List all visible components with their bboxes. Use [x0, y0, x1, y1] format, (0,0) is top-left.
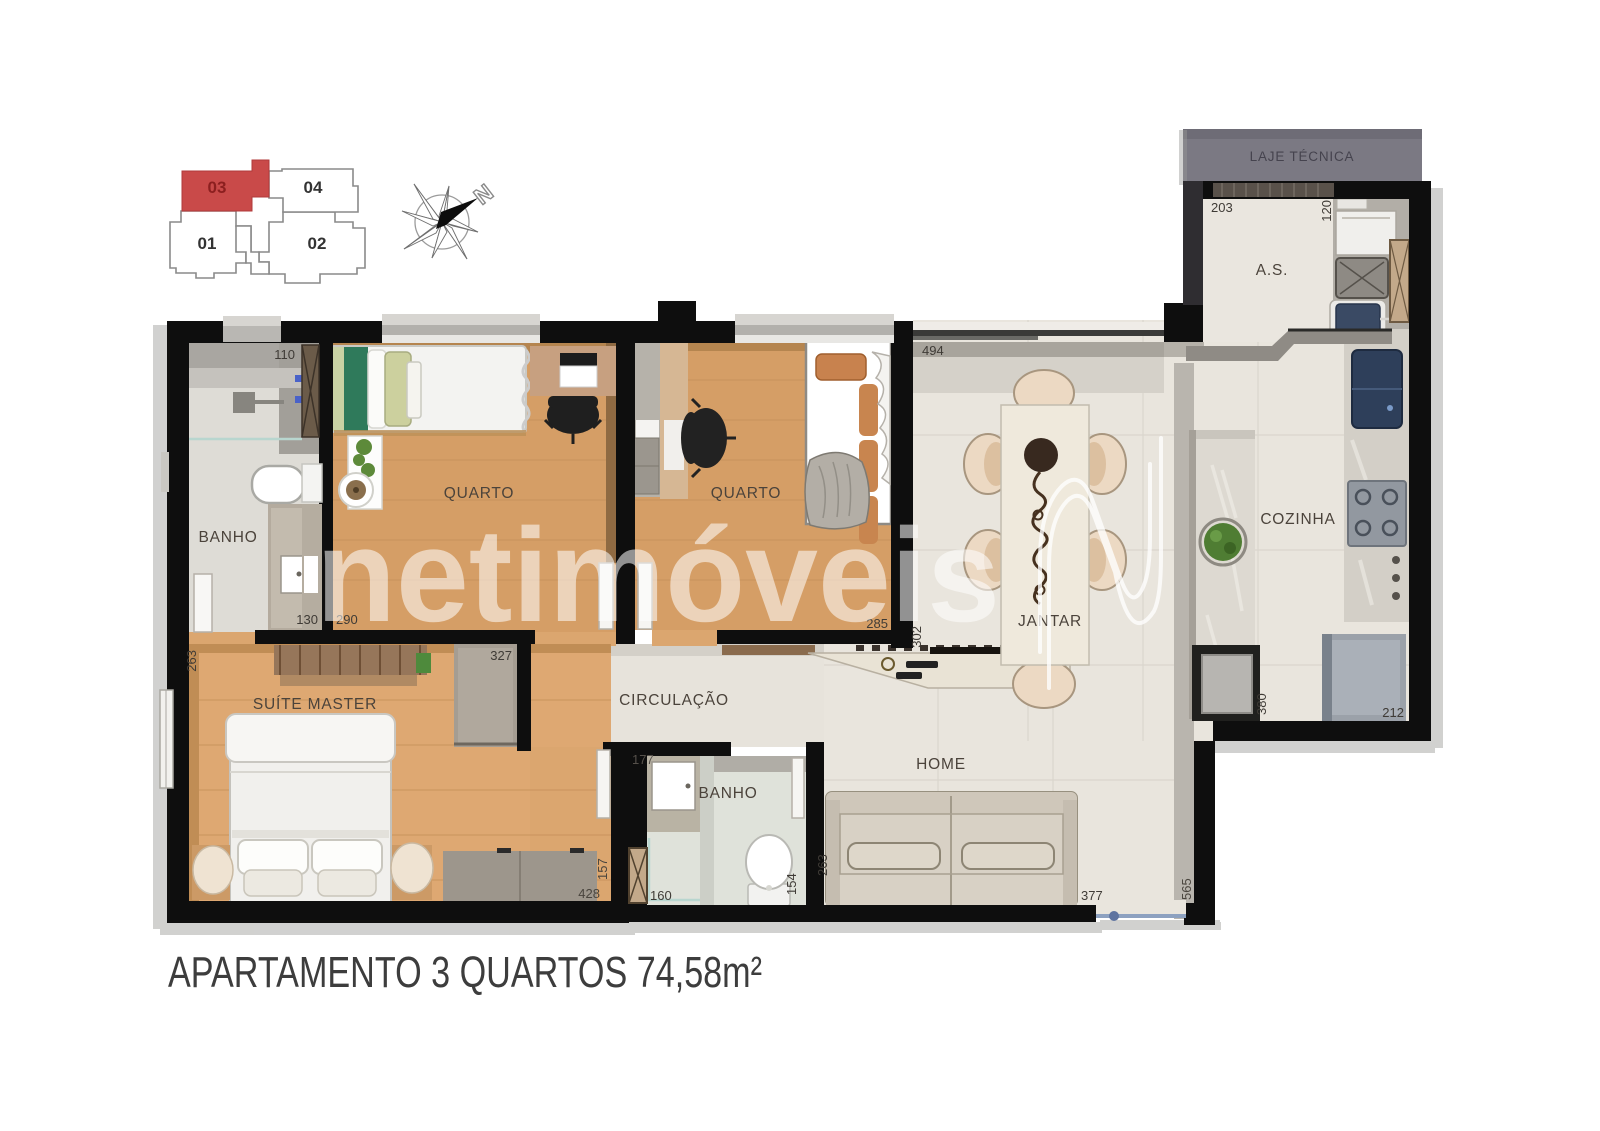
- svg-text:494: 494: [922, 343, 944, 358]
- svg-text:QUARTO: QUARTO: [444, 485, 515, 502]
- svg-text:160: 160: [650, 888, 672, 903]
- svg-text:130: 130: [296, 612, 318, 627]
- svg-text:netimóveis: netimóveis: [316, 502, 1000, 650]
- svg-text:APARTAMENTO 3 QUARTOS 74,58m²: APARTAMENTO 3 QUARTOS 74,58m²: [168, 948, 762, 997]
- svg-text:154: 154: [784, 873, 799, 895]
- svg-text:377: 377: [1081, 888, 1103, 903]
- svg-text:428: 428: [578, 886, 600, 901]
- svg-text:203: 203: [1211, 200, 1233, 215]
- svg-text:BANHO: BANHO: [198, 529, 257, 546]
- svg-text:COZINHA: COZINHA: [1260, 511, 1335, 528]
- svg-text:01: 01: [198, 234, 217, 253]
- svg-text:02: 02: [308, 234, 327, 253]
- svg-text:03: 03: [208, 178, 227, 197]
- svg-text:LAJE TÉCNICA: LAJE TÉCNICA: [1250, 149, 1355, 164]
- svg-text:177: 177: [632, 752, 654, 767]
- svg-text:263: 263: [815, 854, 830, 876]
- svg-text:CIRCULAÇÃO: CIRCULAÇÃO: [619, 692, 729, 709]
- svg-text:04: 04: [304, 178, 323, 197]
- svg-text:SUÍTE MASTER: SUÍTE MASTER: [253, 696, 377, 713]
- svg-text:BANHO: BANHO: [698, 785, 757, 802]
- svg-text:263: 263: [184, 650, 199, 672]
- svg-text:157: 157: [595, 858, 610, 880]
- svg-text:QUARTO: QUARTO: [711, 485, 782, 502]
- svg-text:120: 120: [1319, 200, 1334, 222]
- svg-text:327: 327: [490, 648, 512, 663]
- svg-text:A.S.: A.S.: [1256, 262, 1289, 279]
- svg-text:380: 380: [1254, 693, 1269, 715]
- svg-text:565: 565: [1179, 878, 1194, 900]
- svg-text:212: 212: [1382, 705, 1404, 720]
- svg-text:110: 110: [274, 347, 295, 362]
- svg-text:HOME: HOME: [916, 756, 966, 773]
